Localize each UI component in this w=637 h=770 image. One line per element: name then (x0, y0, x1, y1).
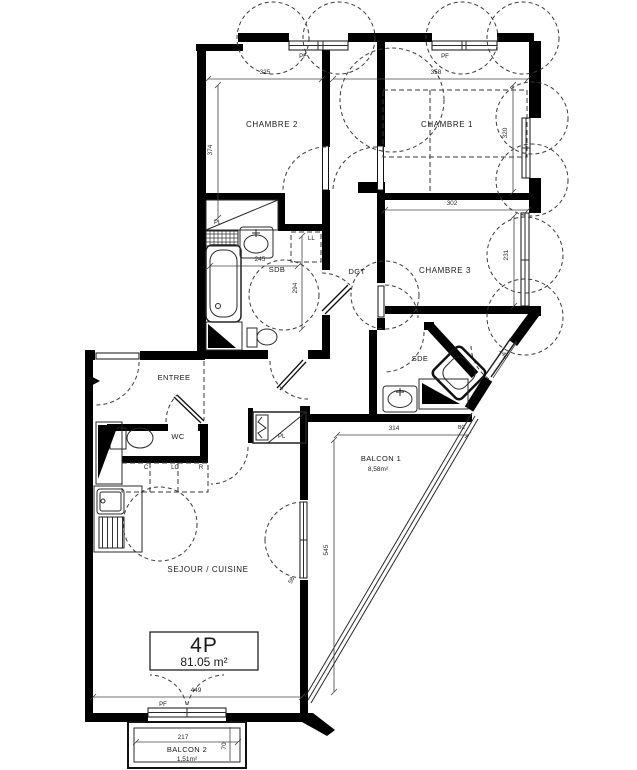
window-right-chambre3 (521, 213, 529, 306)
svg-text:302: 302 (447, 200, 458, 207)
label-sejour: SEJOUR / CUISINE (167, 565, 248, 574)
svg-text:294: 294 (292, 282, 299, 293)
label-pl-entree: PL (278, 434, 286, 440)
label-sde: SDE (412, 354, 429, 363)
dim-balcon1-height: 545 (323, 437, 337, 695)
svg-text:374: 374 (207, 144, 214, 155)
svg-text:140: 140 (497, 348, 509, 361)
washbasin-sde-icon (383, 386, 417, 412)
washer-zone (291, 232, 321, 262)
washbasin-sdb-icon (240, 227, 273, 258)
label-c: C (144, 465, 149, 471)
window-top-chambre2 (289, 41, 348, 50)
svg-text:314: 314 (389, 425, 400, 432)
floor-plan-drawing: 325 374 358 320 302 231 (0, 0, 637, 770)
window-right-chambre1 (522, 118, 530, 178)
svg-text:320: 320 (502, 127, 509, 138)
label-wc: WC (171, 432, 184, 441)
label-ll: LL (308, 236, 315, 242)
dim-chambre1-width: 358 (330, 69, 531, 82)
toilet-sdb-icon (247, 328, 277, 347)
entrance-arrow-icon (87, 374, 100, 388)
label-pf-left: PF (299, 54, 307, 60)
label-bc: BC (458, 425, 465, 431)
window-swing-circles (237, 2, 568, 355)
duct-wc-icon (96, 422, 122, 484)
dim-chambre1-height: 320 (502, 82, 516, 195)
french-door-balcon1 (300, 502, 307, 578)
label-lc: LC (171, 465, 179, 471)
dim-chambre3-height: 231 (503, 213, 517, 309)
radiator-icon (206, 231, 238, 246)
walls (85, 33, 541, 736)
entrance-door-leaf (96, 353, 139, 359)
dim-balcon1-width: 314 (334, 425, 471, 438)
label-pf-right: PF (441, 54, 449, 60)
dim-sejour-bay: 449 (90, 687, 305, 700)
svg-text:545: 545 (323, 544, 330, 555)
label-sdb: SDB (269, 265, 286, 274)
appliance-icon (99, 517, 124, 548)
label-dgt: DGT (348, 267, 365, 276)
label-chambre1: CHAMBRE 1 (421, 120, 473, 129)
svg-text:449: 449 (191, 687, 202, 694)
svg-text:217: 217 (178, 734, 189, 741)
svg-text:231: 231 (503, 249, 510, 260)
label-chambre3: CHAMBRE 3 (419, 266, 471, 275)
title-box: 4P 81.05 m² (150, 632, 258, 670)
label-balcon2-area: 1,51m² (177, 756, 198, 763)
label-chambre2: CHAMBRE 2 (246, 120, 298, 129)
window-diagonal-sde (486, 338, 516, 377)
dim-chambre3-width: 302 (382, 200, 531, 213)
dim-balcon2-depth: 70 (221, 727, 230, 761)
label-entree: ENTREE (158, 373, 191, 382)
unit-type: 4P (190, 634, 218, 657)
svg-text:358: 358 (431, 69, 442, 76)
label-balcon2: BALCON 2 (167, 745, 207, 754)
dim-sdb-height: 294 (292, 233, 305, 332)
label-pf-bottom: PF (159, 702, 167, 708)
label-r: R (199, 465, 204, 471)
cupboard-zone (122, 463, 208, 492)
label-balcon1: BALCON 1 (361, 454, 401, 463)
duct-sde-icon (419, 379, 468, 409)
kitchen-block (94, 486, 142, 552)
unit-area: 81.05 m² (180, 655, 227, 669)
label-balcon1-area: 8,58m² (368, 466, 389, 473)
svg-text:325: 325 (260, 69, 271, 76)
svg-text:245: 245 (255, 256, 266, 263)
label-pl-chambre2: PL (214, 220, 222, 226)
svg-text:70: 70 (221, 742, 228, 750)
dim-sdb-width: 245 (207, 256, 301, 269)
toilet-wc-icon (110, 428, 153, 449)
duct-sdb-icon (206, 322, 242, 350)
bathtub-icon (206, 245, 241, 322)
dim-chambre2-width: 325 (205, 69, 325, 82)
floor-plan-page: 325 374 358 320 302 231 (0, 0, 637, 770)
